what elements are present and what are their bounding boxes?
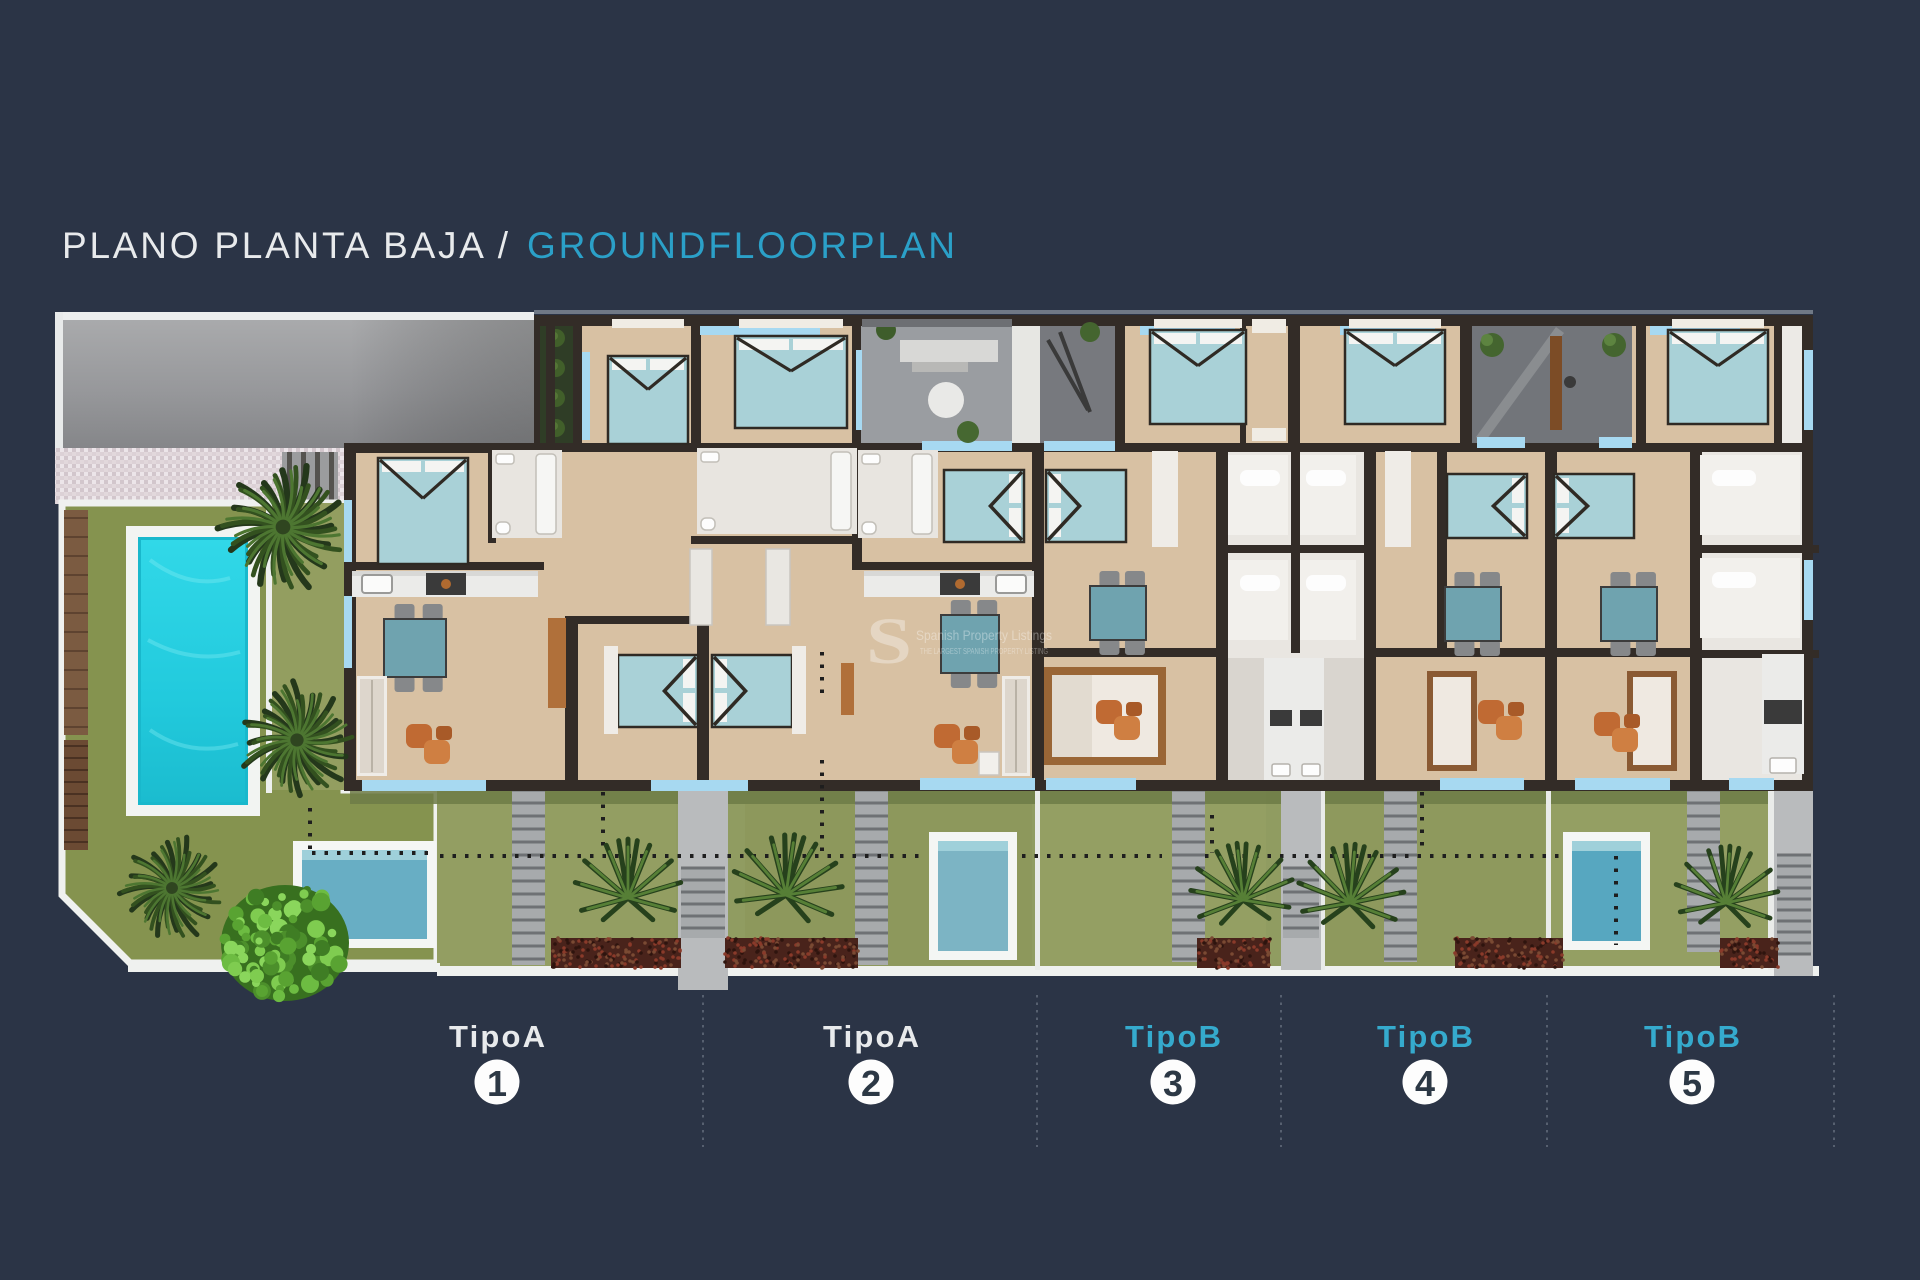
svg-text:3: 3 — [1163, 1063, 1183, 1104]
svg-text:PLANO PLANTA BAJA /: PLANO PLANTA BAJA / — [62, 225, 509, 266]
svg-text:2: 2 — [861, 1063, 881, 1104]
svg-text:4: 4 — [1415, 1063, 1435, 1104]
svg-text:Spanish Property Listings: Spanish Property Listings — [916, 627, 1052, 643]
svg-text:S: S — [866, 605, 912, 678]
svg-text:GROUNDFLOORPLAN: GROUNDFLOORPLAN — [527, 225, 955, 266]
svg-text:TipoB: TipoB — [1377, 1019, 1473, 1054]
svg-text:1: 1 — [487, 1063, 507, 1104]
svg-text:TipoA: TipoA — [449, 1019, 545, 1054]
svg-text:TipoB: TipoB — [1125, 1019, 1221, 1054]
svg-text:TipoB: TipoB — [1644, 1019, 1740, 1054]
svg-text:TipoA: TipoA — [823, 1019, 919, 1054]
svg-text:THE LARGEST SPANISH PROPERTY L: THE LARGEST SPANISH PROPERTY LISTING — [920, 647, 1048, 656]
svg-text:5: 5 — [1682, 1063, 1702, 1104]
